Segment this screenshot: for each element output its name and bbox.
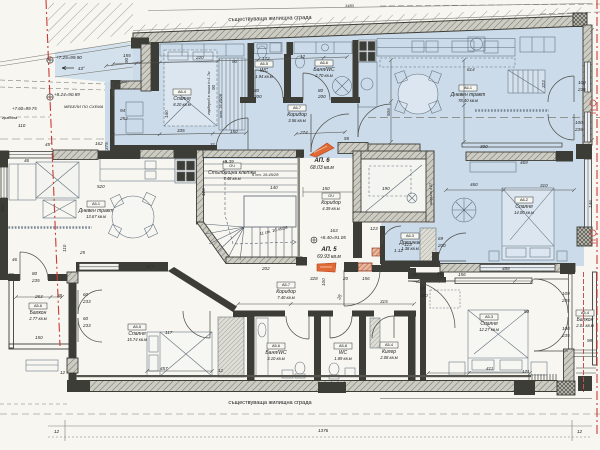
svg-text:25: 25 xyxy=(79,250,86,255)
svg-text:100: 100 xyxy=(562,326,570,331)
svg-text:94: 94 xyxy=(120,108,126,113)
svg-text:110: 110 xyxy=(18,123,26,128)
svg-text:55: 55 xyxy=(344,136,350,141)
svg-text:411: 411 xyxy=(486,366,494,371)
svg-text:2.08 кв.м: 2.08 кв.м xyxy=(379,355,398,360)
svg-text:156: 156 xyxy=(458,272,466,277)
svg-text:457: 457 xyxy=(160,366,168,371)
svg-text:ОЧ: ОЧ xyxy=(328,194,334,198)
svg-text:6 ст. 16.45/28: 6 ст. 16.45/28 xyxy=(252,172,279,177)
svg-text:274: 274 xyxy=(299,130,308,135)
svg-text:8.20 кв.м: 8.20 кв.м xyxy=(173,102,191,107)
svg-text:1.12: 1.12 xyxy=(394,248,403,253)
svg-text:гардероб в ниша h=1.7м: гардероб в ниша h=1.7м xyxy=(207,71,211,115)
svg-text:съществуваща жилищна сграда: съществуваща жилищна сграда xyxy=(228,400,312,406)
svg-text:+8.40=91.05: +8.40=91.05 xyxy=(320,235,346,240)
svg-text:+8.24=90.89: +8.24=90.89 xyxy=(54,92,80,97)
svg-text:235: 235 xyxy=(574,127,583,132)
svg-text:А5-7: А5-7 xyxy=(282,283,290,287)
svg-text:12: 12 xyxy=(577,429,583,434)
svg-text:235: 235 xyxy=(577,87,586,92)
svg-text:3.10 кв.м: 3.10 кв.м xyxy=(267,356,285,361)
svg-text:123: 123 xyxy=(370,226,378,231)
svg-text:2.01 кв.м: 2.01 кв.м xyxy=(575,323,594,328)
svg-text:69: 69 xyxy=(438,236,444,241)
svg-text:13.67 кв.м: 13.67 кв.м xyxy=(86,214,106,219)
svg-text:1.89 кв.м: 1.89 кв.м xyxy=(334,356,352,361)
svg-text:7.48 кв.м: 7.48 кв.м xyxy=(223,176,241,181)
svg-text:200: 200 xyxy=(253,94,262,99)
svg-text:110: 110 xyxy=(62,244,67,252)
svg-text:172: 172 xyxy=(262,56,270,61)
svg-text:2.77 кв.м: 2.77 кв.м xyxy=(28,316,47,321)
svg-text:60: 60 xyxy=(83,292,89,297)
svg-text:А5-1: А5-1 xyxy=(92,202,100,206)
svg-text:69.93 кв.м: 69.93 кв.м xyxy=(317,254,341,260)
svg-text:120: 120 xyxy=(201,188,206,196)
svg-text:градина: градина xyxy=(2,115,18,120)
svg-text:300: 300 xyxy=(480,144,488,149)
svg-text:АП. 6: АП. 6 xyxy=(313,158,330,164)
svg-text:26: 26 xyxy=(436,271,443,276)
svg-text:233: 233 xyxy=(82,323,91,328)
svg-text:+7.25=99.90: +7.25=99.90 xyxy=(56,55,82,60)
svg-text:МЕБЕЛИ ПО СХЕМА: МЕБЕЛИ ПО СХЕМА xyxy=(64,104,104,109)
svg-text:45°: 45° xyxy=(45,142,52,147)
svg-text:310: 310 xyxy=(540,183,548,188)
svg-text:202: 202 xyxy=(261,266,270,271)
svg-text:488: 488 xyxy=(502,266,510,271)
svg-text:162: 162 xyxy=(95,141,103,146)
svg-text:109: 109 xyxy=(562,291,570,296)
svg-text:469: 469 xyxy=(520,160,528,165)
svg-text:7.40 кв.м: 7.40 кв.м xyxy=(277,295,295,300)
svg-text:177: 177 xyxy=(146,264,154,269)
svg-text:323: 323 xyxy=(541,80,546,88)
svg-text:А6-2: А6-2 xyxy=(520,198,528,202)
svg-text:1483: 1483 xyxy=(345,3,355,8)
svg-text:146: 146 xyxy=(588,200,593,208)
svg-text:2.70 кв.м: 2.70 кв.м xyxy=(314,73,333,78)
svg-text:А6-7: А6-7 xyxy=(293,106,301,110)
svg-text:АП. 5: АП. 5 xyxy=(320,247,337,253)
svg-text:20: 20 xyxy=(342,276,349,281)
svg-text:233: 233 xyxy=(82,299,91,304)
svg-text:80: 80 xyxy=(32,271,38,276)
svg-text:12: 12 xyxy=(54,429,60,434)
svg-text:А6-3: А6-3 xyxy=(406,234,414,238)
svg-text:117: 117 xyxy=(165,330,173,335)
svg-text:1.94 кв.м: 1.94 кв.м xyxy=(255,74,273,79)
svg-text:ширина 4.07: ширина 4.07 xyxy=(429,182,433,205)
svg-text:200: 200 xyxy=(317,94,326,99)
svg-text:460: 460 xyxy=(470,182,478,187)
svg-text:263: 263 xyxy=(34,294,43,299)
svg-text:80: 80 xyxy=(254,88,260,93)
svg-text:155: 155 xyxy=(123,53,131,58)
svg-text:90: 90 xyxy=(124,57,129,63)
svg-text:98: 98 xyxy=(587,338,593,343)
svg-text:235: 235 xyxy=(561,333,570,338)
svg-text:12: 12 xyxy=(218,368,224,373)
svg-text:190: 190 xyxy=(382,186,390,191)
svg-text:200: 200 xyxy=(437,243,446,248)
svg-text:А5-4: А5-4 xyxy=(385,343,393,347)
svg-text:А6-6: А6-6 xyxy=(320,61,328,65)
svg-text:ост. 16.45/28: ост. 16.45/28 xyxy=(219,93,223,118)
svg-text:68.03 кв.м: 68.03 кв.м xyxy=(310,165,334,171)
svg-text:315: 315 xyxy=(380,299,388,304)
svg-text:163: 163 xyxy=(330,228,338,233)
svg-text:А5-3: А5-3 xyxy=(485,315,493,319)
svg-text:335: 335 xyxy=(177,128,185,133)
svg-text:12.27 кв.м: 12.27 кв.м xyxy=(479,327,499,332)
svg-text:15.74 кв.м: 15.74 кв.м xyxy=(127,337,147,342)
svg-text:14.00 кв.м: 14.00 кв.м xyxy=(514,210,534,215)
svg-text:123: 123 xyxy=(404,242,412,247)
svg-text:20: 20 xyxy=(411,272,418,277)
svg-text:+7.60=99.75: +7.60=99.75 xyxy=(12,106,37,111)
svg-text:31: 31 xyxy=(210,142,216,147)
svg-text:А5-8: А5-8 xyxy=(339,344,347,348)
svg-text:90: 90 xyxy=(211,84,216,90)
svg-text:4.39 кв.м: 4.39 кв.м xyxy=(322,206,340,211)
svg-text:160: 160 xyxy=(164,110,169,118)
svg-text:1376: 1376 xyxy=(318,428,329,433)
svg-text:46: 46 xyxy=(24,158,30,163)
svg-text:90: 90 xyxy=(232,59,238,64)
svg-text:80: 80 xyxy=(318,88,324,93)
svg-text:235: 235 xyxy=(561,298,570,303)
svg-text:А6-4: А6-4 xyxy=(178,90,186,94)
svg-text:150: 150 xyxy=(35,335,43,340)
svg-text:А5-6: А5-6 xyxy=(34,304,42,308)
svg-text:375: 375 xyxy=(104,142,109,150)
svg-text:252: 252 xyxy=(119,116,128,121)
svg-text:43°: 43° xyxy=(78,66,85,71)
svg-text:3.56 кв.м: 3.56 кв.м xyxy=(288,118,306,123)
svg-text:100: 100 xyxy=(578,80,586,85)
svg-text:150: 150 xyxy=(322,186,330,191)
svg-text:А6-1: А6-1 xyxy=(464,86,472,90)
svg-text:60: 60 xyxy=(83,316,89,321)
svg-text:ОЧ: ОЧ xyxy=(229,164,235,168)
svg-text:506: 506 xyxy=(386,108,391,116)
svg-text:А5-4: А5-4 xyxy=(581,311,589,315)
svg-text:200: 200 xyxy=(419,293,428,298)
svg-text:520: 520 xyxy=(97,184,105,189)
svg-text:80: 80 xyxy=(420,286,426,291)
svg-text:А5-5: А5-5 xyxy=(133,325,141,329)
svg-text:614: 614 xyxy=(467,67,475,72)
svg-text:328: 328 xyxy=(310,276,318,281)
svg-text:12: 12 xyxy=(60,370,66,375)
svg-text:156: 156 xyxy=(362,276,370,281)
svg-text:100: 100 xyxy=(575,120,583,125)
svg-text:+9.39: +9.39 xyxy=(222,159,234,164)
svg-text:78.40 кв.м: 78.40 кв.м xyxy=(458,98,478,103)
svg-text:220: 220 xyxy=(195,55,204,60)
svg-text:А5-6: А5-6 xyxy=(272,344,280,348)
svg-text:А6-5: А6-5 xyxy=(260,62,268,66)
svg-text:46: 46 xyxy=(12,257,18,262)
svg-text:100: 100 xyxy=(321,278,326,286)
svg-text:140: 140 xyxy=(270,185,278,190)
svg-text:235: 235 xyxy=(31,278,40,283)
svg-text:50: 50 xyxy=(524,309,530,314)
svg-text:200: 200 xyxy=(0,204,5,213)
